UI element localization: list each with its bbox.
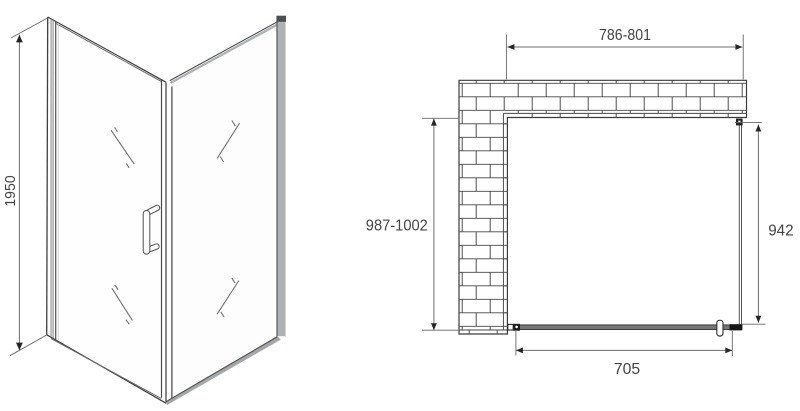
svg-text:705: 705: [614, 361, 641, 378]
svg-text:786-801: 786-801: [599, 27, 651, 44]
svg-text:942: 942: [768, 223, 793, 240]
svg-text:1950: 1950: [2, 175, 19, 206]
svg-text:987-1002: 987-1002: [366, 217, 428, 234]
